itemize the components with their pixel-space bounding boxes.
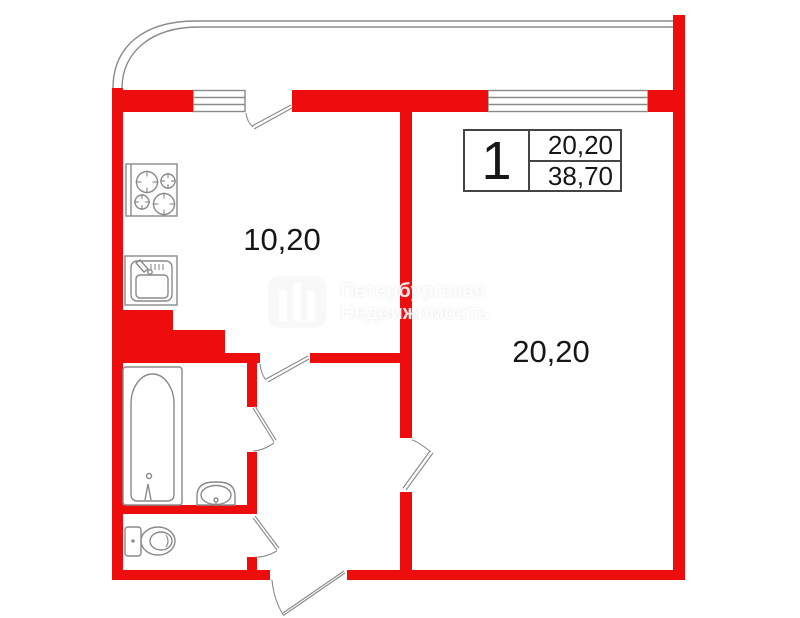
wall-bathroom-lower [247, 452, 257, 507]
wall-left [112, 88, 123, 580]
wall-bottom-left [112, 570, 270, 580]
wall-kitchen-hall-left [123, 353, 260, 363]
wall-room-divider-upper [400, 112, 412, 438]
bathroom-door [253, 406, 276, 451]
wall-bath-wc-divider [123, 505, 257, 514]
wall-right [673, 15, 685, 580]
toilet-icon [125, 527, 175, 556]
total-area-value: 38,70 [530, 162, 620, 191]
floor-plan: Петербургская Недвижимость 1 20,20 38,70… [0, 0, 800, 618]
living-room-door [403, 440, 433, 490]
wall-top-left [112, 90, 193, 112]
apartment-info-box: 1 20,20 38,70 [463, 129, 622, 192]
wall-kitchen-hall-right [310, 353, 405, 363]
wall-top-middle [292, 90, 488, 112]
apartment-areas: 20,20 38,70 [530, 131, 620, 190]
wall-wc-nub [247, 557, 257, 570]
living-room-window [488, 91, 648, 112]
wash-basin-icon [197, 482, 235, 505]
kitchen-sink-icon [125, 256, 177, 305]
wall-room-divider-lower [400, 492, 412, 580]
wall-bottom-right [347, 570, 685, 580]
wall-kitchen-step-1 [123, 310, 173, 331]
balcony-outline [113, 21, 673, 88]
wall-bathroom-upper [247, 363, 257, 407]
bathtub-icon [123, 367, 182, 505]
entrance-door [272, 571, 345, 616]
wall-kitchen-step-2 [123, 330, 225, 353]
wc-door [253, 516, 279, 557]
stove-icon [126, 164, 177, 216]
living-area-value: 20,20 [530, 131, 620, 162]
apartment-number: 1 [465, 131, 530, 190]
floor-plan-drawing [0, 0, 800, 618]
balcony-door [246, 105, 292, 129]
kitchen-window [193, 91, 245, 112]
kitchen-door [260, 356, 309, 382]
living-room-area-label: 20,20 [481, 336, 621, 367]
kitchen-area-label: 10,20 [212, 224, 352, 255]
